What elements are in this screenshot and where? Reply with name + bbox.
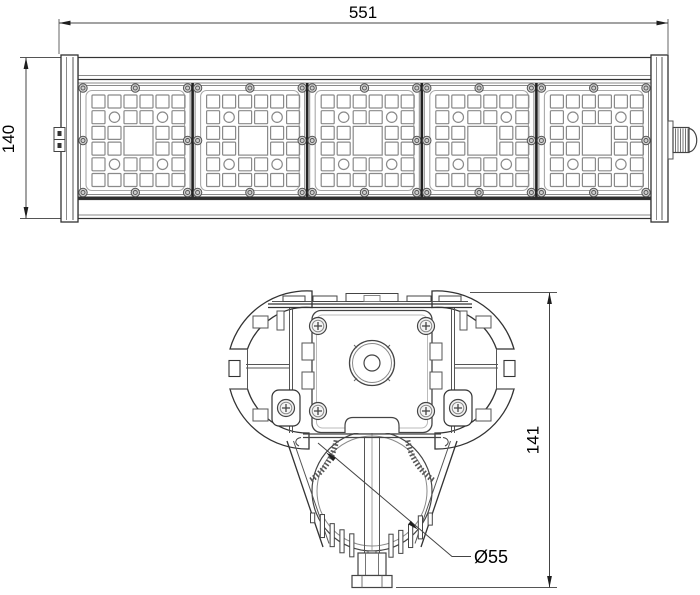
- top-rail: [78, 58, 651, 80]
- lens-square: [614, 95, 627, 108]
- lens-square: [369, 95, 382, 108]
- lens-square: [239, 158, 252, 171]
- screw-icon: [79, 188, 87, 196]
- lens-square: [321, 95, 334, 108]
- lens-circle: [339, 112, 349, 122]
- adjustment-knob: [350, 341, 395, 386]
- lens-square: [172, 142, 185, 155]
- lens-square: [172, 111, 185, 124]
- lens-center-square: [353, 126, 382, 155]
- screw-icon: [310, 318, 327, 335]
- lens-square: [550, 174, 563, 187]
- lens-square: [287, 95, 300, 108]
- front-view: 551 140: [0, 3, 697, 222]
- led-module: [193, 83, 307, 197]
- fin: [340, 530, 344, 553]
- lens-square: [124, 95, 137, 108]
- lens-center-square: [582, 126, 611, 155]
- lens-square: [207, 158, 220, 171]
- lens-circle: [568, 159, 578, 169]
- lens-square: [172, 95, 185, 108]
- dim-width-label: 551: [349, 3, 377, 22]
- lens-square: [271, 95, 284, 108]
- lens-square: [287, 111, 300, 124]
- lens-circle: [568, 112, 578, 122]
- lens-square: [516, 111, 529, 124]
- lens-circle: [109, 112, 119, 122]
- lens-circle: [224, 112, 234, 122]
- lens-square: [500, 126, 513, 139]
- lens-square: [385, 126, 398, 139]
- lens-plate: [201, 91, 300, 191]
- cable-gland: [668, 121, 697, 159]
- lens-square: [598, 95, 611, 108]
- lens-circle: [501, 159, 511, 169]
- lens-square: [156, 142, 169, 155]
- lens-circle: [339, 159, 349, 169]
- fin: [320, 515, 324, 538]
- screw-icon: [310, 403, 327, 420]
- lens-square: [108, 95, 121, 108]
- side-bracket: [54, 128, 65, 152]
- fin: [409, 525, 413, 548]
- lens-circle: [224, 159, 234, 169]
- lens-square: [436, 95, 449, 108]
- lens-square: [630, 126, 643, 139]
- lens-square: [271, 174, 284, 187]
- fin: [350, 534, 354, 557]
- arrowhead-icon: [24, 207, 29, 219]
- screw-icon: [423, 188, 431, 196]
- lens-center-square: [239, 126, 268, 155]
- lens-circle: [501, 112, 511, 122]
- lens-square: [140, 174, 153, 187]
- lens-square: [156, 174, 169, 187]
- lens-square: [337, 142, 350, 155]
- screw-icon: [193, 84, 201, 92]
- end-cap-right: [651, 55, 668, 222]
- lens-square: [630, 95, 643, 108]
- plate-notch: [345, 418, 399, 434]
- lens-square: [598, 111, 611, 124]
- screw-icon: [298, 136, 306, 144]
- lens-square: [223, 126, 236, 139]
- lens-square: [223, 142, 236, 155]
- lens-square: [156, 126, 169, 139]
- lens-square: [337, 95, 350, 108]
- lens-square: [550, 111, 563, 124]
- lens-square: [156, 95, 169, 108]
- lens-square: [468, 111, 481, 124]
- lens-square: [630, 111, 643, 124]
- lens-square: [124, 111, 137, 124]
- lens-square: [436, 111, 449, 124]
- screw-icon: [246, 84, 254, 92]
- lens-square: [287, 158, 300, 171]
- lens-square: [207, 95, 220, 108]
- led-module: [307, 83, 421, 197]
- lens-square: [353, 158, 366, 171]
- lens-square: [255, 158, 268, 171]
- lens-square: [207, 111, 220, 124]
- lens-square: [436, 174, 449, 187]
- lens-square: [207, 174, 220, 187]
- lens-square: [500, 174, 513, 187]
- lens-square: [287, 126, 300, 139]
- screw-icon: [183, 188, 191, 196]
- lens-square: [582, 174, 595, 187]
- screw-icon: [413, 136, 421, 144]
- lens-square: [108, 142, 121, 155]
- front-view-housing: [54, 55, 697, 222]
- lens-square: [436, 158, 449, 171]
- screw-icon: [131, 188, 139, 196]
- lens-square: [401, 158, 414, 171]
- led-module: [422, 83, 536, 197]
- screw-icon: [193, 188, 201, 196]
- lens-square: [385, 174, 398, 187]
- lens-square: [287, 142, 300, 155]
- lens-square: [337, 174, 350, 187]
- lens-square: [468, 158, 481, 171]
- lens-square: [92, 174, 105, 187]
- lens-square: [108, 174, 121, 187]
- dim-section-height-label: 141: [524, 426, 543, 454]
- lens-square: [140, 111, 153, 124]
- lens-square: [468, 95, 481, 108]
- lens-square: [207, 126, 220, 139]
- lens-circle: [387, 159, 397, 169]
- lens-square: [353, 95, 366, 108]
- screw-icon: [537, 136, 545, 144]
- lens-plate: [544, 91, 643, 191]
- led-module: [79, 84, 192, 197]
- lens-square: [255, 174, 268, 187]
- lens-square: [401, 142, 414, 155]
- fin: [399, 530, 403, 553]
- lens-square: [401, 174, 414, 187]
- lens-square: [516, 95, 529, 108]
- lens-square: [614, 142, 627, 155]
- lens-square: [92, 142, 105, 155]
- lens-square: [550, 95, 563, 108]
- pipe-diameter-label: Ø55: [474, 547, 508, 567]
- lens-square: [239, 95, 252, 108]
- lens-square: [287, 174, 300, 187]
- lens-square: [582, 158, 595, 171]
- screw-icon: [590, 188, 598, 196]
- screw-icon: [527, 84, 535, 92]
- lens-square: [516, 174, 529, 187]
- lens-circle: [109, 159, 119, 169]
- lens-circle: [157, 159, 167, 169]
- lens-square: [385, 142, 398, 155]
- screw-icon: [423, 136, 431, 144]
- screw-icon: [642, 136, 650, 144]
- lens-square: [255, 95, 268, 108]
- lens-square: [452, 142, 465, 155]
- bolt-head: [358, 553, 386, 576]
- arrowhead-icon: [547, 293, 552, 305]
- screw-icon: [450, 400, 467, 417]
- lens-square: [516, 142, 529, 155]
- screw-icon: [193, 136, 201, 144]
- arrowhead-icon: [24, 58, 29, 70]
- lens-square: [239, 111, 252, 124]
- lens-square: [140, 158, 153, 171]
- screw-icon: [423, 84, 431, 92]
- drawing-page: 551 140: [0, 0, 700, 595]
- lens-plate: [315, 91, 414, 191]
- screw-icon: [527, 188, 535, 196]
- screw-icon: [298, 84, 306, 92]
- screw-icon: [308, 188, 316, 196]
- lens-circle: [616, 159, 626, 169]
- screw-icon: [183, 136, 191, 144]
- lens-square: [124, 158, 137, 171]
- clamp-bolt: [352, 551, 392, 588]
- lens-square: [452, 174, 465, 187]
- screw-icon: [308, 84, 316, 92]
- screw-icon: [527, 136, 535, 144]
- lens-circle: [453, 159, 463, 169]
- lens-square: [271, 142, 284, 155]
- fin: [418, 516, 422, 539]
- lens-square: [468, 174, 481, 187]
- screw-icon: [360, 84, 368, 92]
- lens-square: [337, 126, 350, 139]
- lens-square: [484, 174, 497, 187]
- lens-square: [140, 95, 153, 108]
- dim-height-label: 140: [0, 125, 18, 153]
- screw-icon: [413, 188, 421, 196]
- lens-square: [614, 126, 627, 139]
- bolt-flange: [352, 576, 392, 588]
- lens-circle: [272, 159, 282, 169]
- lens-square: [401, 126, 414, 139]
- screw-icon: [537, 84, 545, 92]
- lens-square: [321, 126, 334, 139]
- lens-square: [500, 95, 513, 108]
- lens-square: [92, 95, 105, 108]
- lens-square: [353, 174, 366, 187]
- lens-square: [401, 95, 414, 108]
- screw-icon: [278, 400, 295, 417]
- arrowhead-icon: [59, 21, 71, 26]
- lens-square: [321, 158, 334, 171]
- lens-square: [172, 126, 185, 139]
- lens-square: [321, 111, 334, 124]
- screw-icon: [79, 136, 87, 144]
- screw-icon: [475, 84, 483, 92]
- screw-icon: [308, 136, 316, 144]
- lens-square: [582, 95, 595, 108]
- screw-icon: [79, 84, 87, 92]
- lens-square: [484, 158, 497, 171]
- lens-square: [452, 126, 465, 139]
- section-view: 141 Ø55: [229, 291, 557, 588]
- led-module: [536, 83, 650, 197]
- lens-plate: [86, 91, 185, 191]
- lens-square: [172, 158, 185, 171]
- lens-square: [207, 142, 220, 155]
- screw-icon: [642, 84, 650, 92]
- lens-square: [614, 174, 627, 187]
- screw-icon: [298, 188, 306, 196]
- led-module-array: [79, 83, 650, 197]
- fin: [311, 513, 315, 523]
- lens-square: [550, 126, 563, 139]
- lens-square: [630, 174, 643, 187]
- arrowhead-icon: [547, 576, 552, 588]
- lens-square: [223, 174, 236, 187]
- lens-square: [550, 158, 563, 171]
- lens-square: [484, 111, 497, 124]
- fin: [389, 534, 393, 557]
- lens-square: [255, 111, 268, 124]
- lens-square: [108, 126, 121, 139]
- lens-square: [484, 95, 497, 108]
- lens-circle: [616, 112, 626, 122]
- lens-square: [92, 158, 105, 171]
- lens-plate: [430, 91, 529, 191]
- lens-square: [385, 95, 398, 108]
- screw-icon: [537, 188, 545, 196]
- lens-square: [566, 174, 579, 187]
- fin: [428, 513, 432, 525]
- lens-square: [582, 111, 595, 124]
- lens-square: [630, 158, 643, 171]
- lens-square: [369, 111, 382, 124]
- arrowhead-icon: [657, 21, 669, 26]
- lens-square: [239, 174, 252, 187]
- lens-center-square: [468, 126, 497, 155]
- lens-square: [630, 142, 643, 155]
- screw-icon: [183, 84, 191, 92]
- lens-square: [436, 142, 449, 155]
- lens-circle: [272, 112, 282, 122]
- pipe-diameter-callout: Ø55: [318, 443, 508, 567]
- gland-tip: [689, 129, 697, 153]
- lens-square: [566, 142, 579, 155]
- lens-square: [321, 142, 334, 155]
- screw-icon: [360, 188, 368, 196]
- lens-center-square: [124, 126, 153, 155]
- technical-drawing: 551 140: [0, 0, 700, 595]
- lens-square: [566, 126, 579, 139]
- lens-square: [223, 95, 236, 108]
- lens-square: [92, 126, 105, 139]
- lens-square: [566, 95, 579, 108]
- lens-square: [321, 174, 334, 187]
- bottom-rail: [78, 200, 651, 219]
- lens-square: [436, 126, 449, 139]
- lens-square: [598, 158, 611, 171]
- fin: [330, 524, 334, 547]
- screw-icon: [590, 84, 598, 92]
- lens-square: [516, 158, 529, 171]
- screw-icon: [642, 188, 650, 196]
- lens-circle: [157, 112, 167, 122]
- lens-square: [271, 126, 284, 139]
- screw-icon: [418, 403, 435, 420]
- lens-square: [369, 158, 382, 171]
- lens-circle: [387, 112, 397, 122]
- lens-square: [92, 111, 105, 124]
- screw-icon: [475, 188, 483, 196]
- lens-square: [452, 95, 465, 108]
- lens-square: [401, 111, 414, 124]
- lens-square: [516, 126, 529, 139]
- screw-icon: [418, 318, 435, 335]
- lens-square: [500, 142, 513, 155]
- lens-square: [369, 174, 382, 187]
- screw-icon: [246, 188, 254, 196]
- screw-icon: [131, 84, 139, 92]
- lens-square: [172, 174, 185, 187]
- knob-hole: [364, 355, 380, 371]
- screw-icon: [413, 84, 421, 92]
- lens-square: [124, 174, 137, 187]
- front-view-dimension-width: 551: [59, 3, 668, 54]
- lens-square: [550, 142, 563, 155]
- lens-square: [598, 174, 611, 187]
- lens-circle: [453, 112, 463, 122]
- lens-square: [353, 111, 366, 124]
